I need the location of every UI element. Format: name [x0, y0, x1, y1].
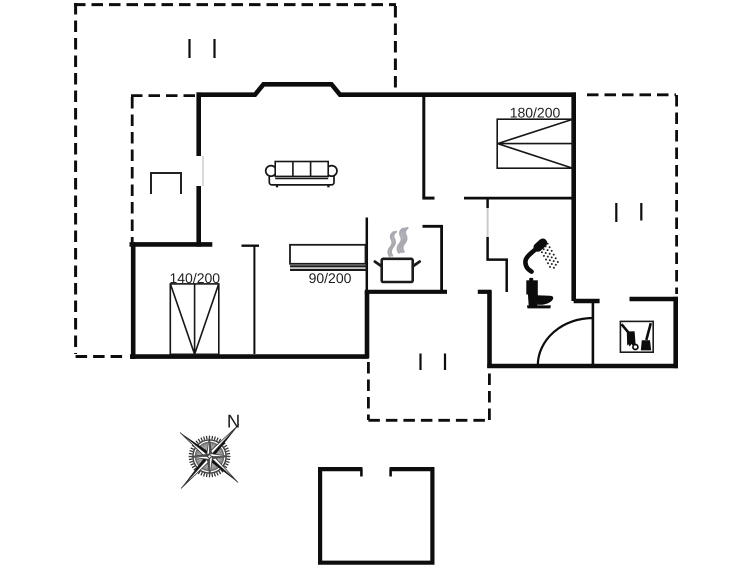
svg-text:140/200: 140/200 — [169, 270, 220, 286]
svg-text:90/200: 90/200 — [309, 270, 352, 286]
svg-text:180/200: 180/200 — [510, 105, 561, 121]
svg-text:N: N — [227, 410, 240, 431]
